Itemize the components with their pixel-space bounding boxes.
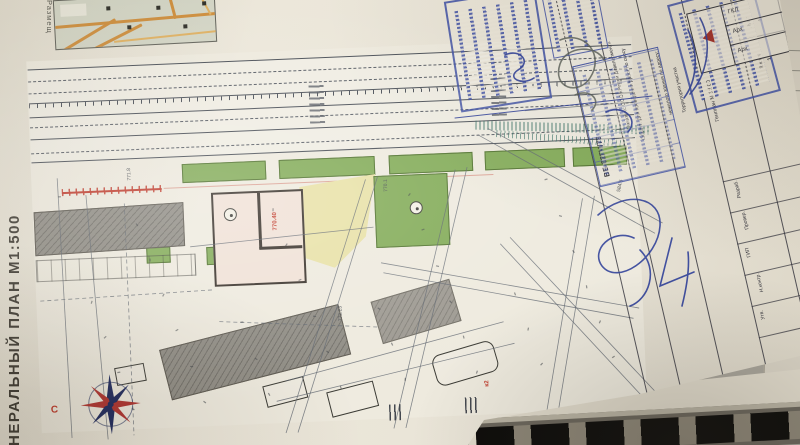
building-wall xyxy=(259,245,302,249)
row-label: Провер. xyxy=(740,211,750,231)
lawn-strip xyxy=(279,156,376,179)
elevation-label: 770.1 xyxy=(383,179,390,192)
elevation-label: 772.23 xyxy=(337,306,344,322)
approval-stamp xyxy=(444,0,552,113)
row-label: Утв. xyxy=(759,310,767,321)
border-ticks xyxy=(389,404,402,420)
approval-stamp xyxy=(541,0,608,59)
elevation-label: 771.8 xyxy=(126,168,133,181)
north-label: С xyxy=(51,404,59,415)
drawing-sheet: Размещ НЕРАЛЬНЫЙ ПЛАН М1:500 xyxy=(0,0,800,445)
photo-of-site-plan: Размещ НЕРАЛЬНЫЙ ПЛАН М1:500 xyxy=(0,0,800,445)
lawn-strip xyxy=(389,152,474,175)
row-label: Н.контр. xyxy=(755,273,765,293)
inset-building xyxy=(127,25,131,29)
crosswalk xyxy=(308,83,325,124)
building-wall xyxy=(257,193,262,249)
row-label: ГИП xyxy=(744,247,752,258)
survey-point-icon xyxy=(224,208,238,222)
revision-triangle-icon xyxy=(701,29,715,45)
red-annotation: к2 xyxy=(484,380,490,387)
border-ticks xyxy=(465,397,478,413)
inset-building xyxy=(183,24,187,28)
lawn-strip xyxy=(484,148,565,170)
inset-building xyxy=(202,1,206,5)
inset-building xyxy=(156,6,160,10)
compass-rose-icon xyxy=(77,371,144,438)
demolition-building: 770.40 xyxy=(211,189,307,287)
inset-block xyxy=(60,4,87,17)
tree-symbol-icon xyxy=(409,201,423,215)
inset-building xyxy=(106,6,110,10)
lawn-strip xyxy=(182,161,267,184)
building-elevation-label: 770.40 xyxy=(272,212,279,231)
row-label: Разраб. xyxy=(733,180,743,199)
